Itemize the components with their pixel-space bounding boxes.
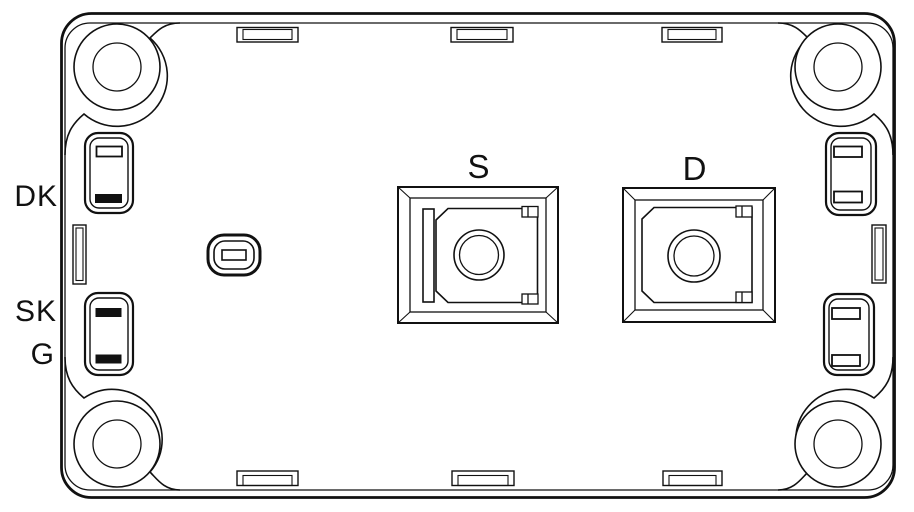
mounting-boss-circle [74,24,160,110]
screw-hole-inner [674,236,714,276]
edge-tab-inner [669,476,716,486]
pin-slot-filled [96,308,122,317]
module-top-view-drawing: DK SK G S D [0,0,914,512]
mounting-boss-circle [795,401,881,487]
edge-tab-inner [243,30,292,40]
screw-hole-outer [668,230,720,282]
edge-tab [662,28,722,43]
label-d: D [683,150,708,187]
case-outline [62,14,895,498]
edge-tab [451,28,513,43]
aux-terminal-sk-g [85,293,133,375]
side-tab-outer [73,225,86,284]
edge-tab-inner [668,30,716,40]
pin-slot [97,147,123,157]
aux-terminal-dk [85,133,133,213]
label-s: S [467,148,490,185]
clip-body [736,292,752,303]
side-tab-right [872,225,886,283]
corner-contours [65,23,893,490]
pad-side-bar [423,209,434,302]
pin-slot [832,308,860,319]
pin-slot-filled [95,194,122,203]
mounting-hole-top-right [795,24,881,110]
mounting-hole-bottom-left [74,401,160,487]
edge-tab-inner [243,476,292,486]
edge-tab-outer [663,471,722,486]
aux-terminal-top-right [826,133,876,215]
bottom-edge-tabs [237,471,722,486]
clip-body [522,207,538,218]
edge-tab [452,471,514,486]
mounting-boss-circle [795,24,881,110]
aux-terminal-inner [829,299,869,370]
pin-slot-filled [96,355,122,364]
label-sk: SK [15,295,57,328]
edge-tab-inner [458,476,508,486]
pin-slot [834,192,862,203]
clip-body [522,294,538,304]
pad-plate [436,209,538,303]
side-tab-inner [875,228,883,280]
pilot-inner [214,241,254,269]
mounting-hole-top-left [74,24,160,110]
mounting-hole-bottom-right [795,401,881,487]
edge-tab [237,28,298,43]
pin-slot [832,355,860,366]
aux-terminal-inner [831,138,871,210]
edge-tab [663,471,722,486]
pilot-slot [222,250,246,260]
pin-slot [834,147,862,158]
aux-terminal-bottom-right [824,294,874,375]
mounting-boss-circle [74,401,160,487]
clip-body [736,206,752,217]
drawing-canvas: DK SK G S D [0,0,914,512]
case-outer-edge [62,14,895,498]
pad-clip [522,207,538,218]
pad-plate [642,208,752,303]
screw-hole-outer [454,230,504,280]
label-g: G [31,338,55,371]
side-tab-inner [76,228,83,281]
pad-clip [522,294,538,304]
label-dk: DK [14,180,58,213]
power-terminal-d [623,188,775,322]
edge-tab-inner [457,30,507,40]
pad-clip [736,206,752,217]
pad-clip [736,292,752,303]
side-tab-outer [872,225,886,283]
case-inner-edge [65,23,893,490]
edge-tab [237,471,298,486]
edge-tab-outer [237,471,298,486]
edge-tab-outer [452,471,514,486]
side-tab-left [73,225,86,284]
center-pilot-terminal [208,235,260,275]
top-edge-tabs [237,28,722,43]
power-terminal-s [398,187,558,323]
screw-hole-inner [460,236,499,275]
